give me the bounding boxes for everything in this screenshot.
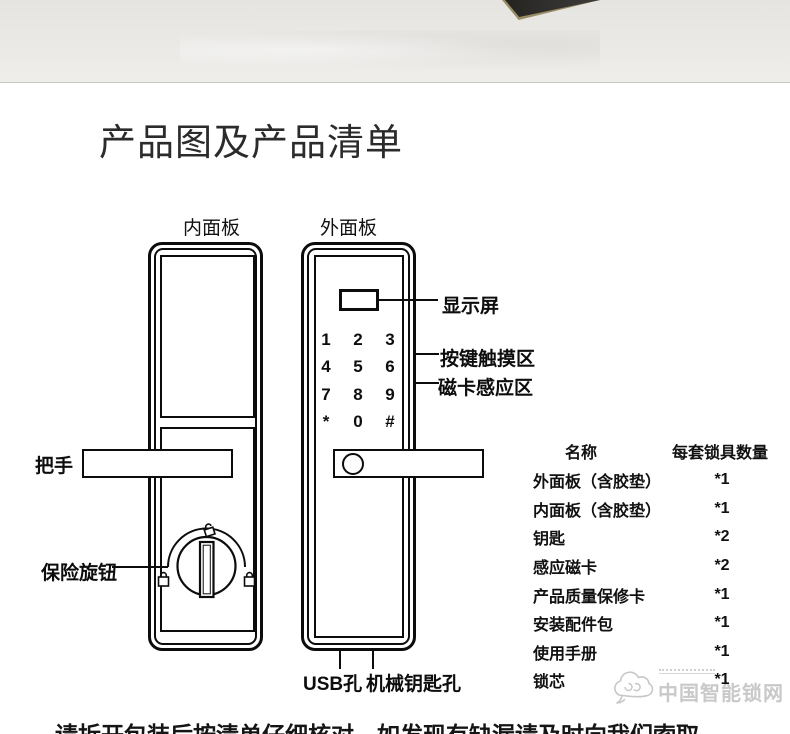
knob-label: 保险旋钮	[41, 558, 117, 585]
key-9: 9	[374, 381, 406, 409]
screen-label: 显示屏	[442, 291, 499, 318]
keypad-callout-line	[416, 353, 439, 355]
part-qty: *1	[683, 471, 761, 489]
part-name: 钥匙	[533, 525, 683, 549]
footer-note: 请拆开包装后按清单仔细核对，如发现有缺漏请及时向我们索取。	[55, 716, 722, 734]
part-qty: *1	[683, 643, 761, 661]
key-5: 5	[342, 354, 374, 382]
inner-panel-upper-section	[160, 255, 255, 418]
table-row: 外面板（含胶垫） *1	[533, 466, 773, 495]
part-name: 安装配件包	[533, 611, 683, 635]
product-photo	[0, 0, 790, 83]
table-row: 钥匙 *2	[533, 523, 773, 552]
page-title: 产品图及产品清单	[99, 112, 403, 166]
page: 产品图及产品清单 内面板 外面板 把手 保险旋钮	[0, 0, 790, 734]
handle-label: 把手	[35, 451, 73, 478]
parts-table: 名称 每套锁具数量 外面板（含胶垫） *1 内面板（含胶垫） *1 钥匙 *2 …	[533, 439, 773, 695]
part-name: 使用手册	[533, 640, 683, 664]
usb-callout-line	[339, 650, 341, 669]
part-qty: *2	[683, 557, 761, 575]
lock-icon-left	[159, 573, 169, 586]
knob-bar	[200, 542, 214, 597]
table-row: 锁芯 *1	[533, 666, 773, 695]
outer-panel-label: 外面板	[320, 213, 377, 240]
key-star: *	[310, 409, 342, 437]
part-qty: *1	[683, 671, 761, 689]
header-name: 名称	[565, 439, 597, 463]
keypad: 1 2 3 4 5 6 7 8 9 * 0 #	[310, 326, 406, 436]
part-name: 外面板（含胶垫）	[533, 468, 683, 492]
keyhole-label: 机械钥匙孔	[366, 669, 461, 696]
fingerprint-reader	[342, 453, 364, 475]
inner-handle	[82, 449, 233, 478]
table-row: 使用手册 *1	[533, 638, 773, 667]
keyhole-callout-line	[372, 650, 374, 669]
keypad-area-label: 按键触摸区	[440, 344, 535, 371]
part-name: 产品质量保修卡	[533, 583, 683, 607]
card-callout-line	[416, 382, 439, 384]
part-name: 感应磁卡	[533, 554, 683, 578]
part-name: 锁芯	[533, 668, 683, 692]
part-qty: *2	[683, 528, 761, 546]
inner-panel-label: 内面板	[183, 213, 240, 240]
part-name: 内面板（含胶垫）	[533, 497, 683, 521]
safety-knob-graphic	[150, 508, 265, 608]
knob-callout-line	[112, 566, 168, 568]
key-7: 7	[310, 381, 342, 409]
key-6: 6	[374, 354, 406, 382]
photo-texture	[180, 30, 600, 70]
part-qty: *1	[683, 586, 761, 604]
table-row: 安装配件包 *1	[533, 609, 773, 638]
screen-callout-line	[378, 299, 438, 301]
part-qty: *1	[683, 614, 761, 632]
usb-label: USB孔	[303, 669, 362, 696]
key-4: 4	[310, 354, 342, 382]
card-area-label: 磁卡感应区	[438, 373, 533, 400]
key-8: 8	[342, 381, 374, 409]
key-0: 0	[342, 409, 374, 437]
part-qty: *1	[683, 500, 761, 518]
unlock-icon	[203, 523, 215, 537]
lockbox-corner	[505, 0, 600, 17]
display-screen	[339, 289, 379, 311]
key-hash: #	[374, 409, 406, 437]
table-row: 内面板（含胶垫） *1	[533, 495, 773, 524]
table-row: 产品质量保修卡 *1	[533, 580, 773, 609]
lock-icon-right	[245, 573, 255, 586]
key-2: 2	[342, 326, 374, 354]
outer-panel-face	[314, 255, 404, 638]
key-1: 1	[310, 326, 342, 354]
key-3: 3	[374, 326, 406, 354]
header-qty: 每套锁具数量	[672, 439, 768, 463]
parts-table-header: 名称 每套锁具数量	[533, 439, 773, 466]
table-row: 感应磁卡 *2	[533, 552, 773, 581]
